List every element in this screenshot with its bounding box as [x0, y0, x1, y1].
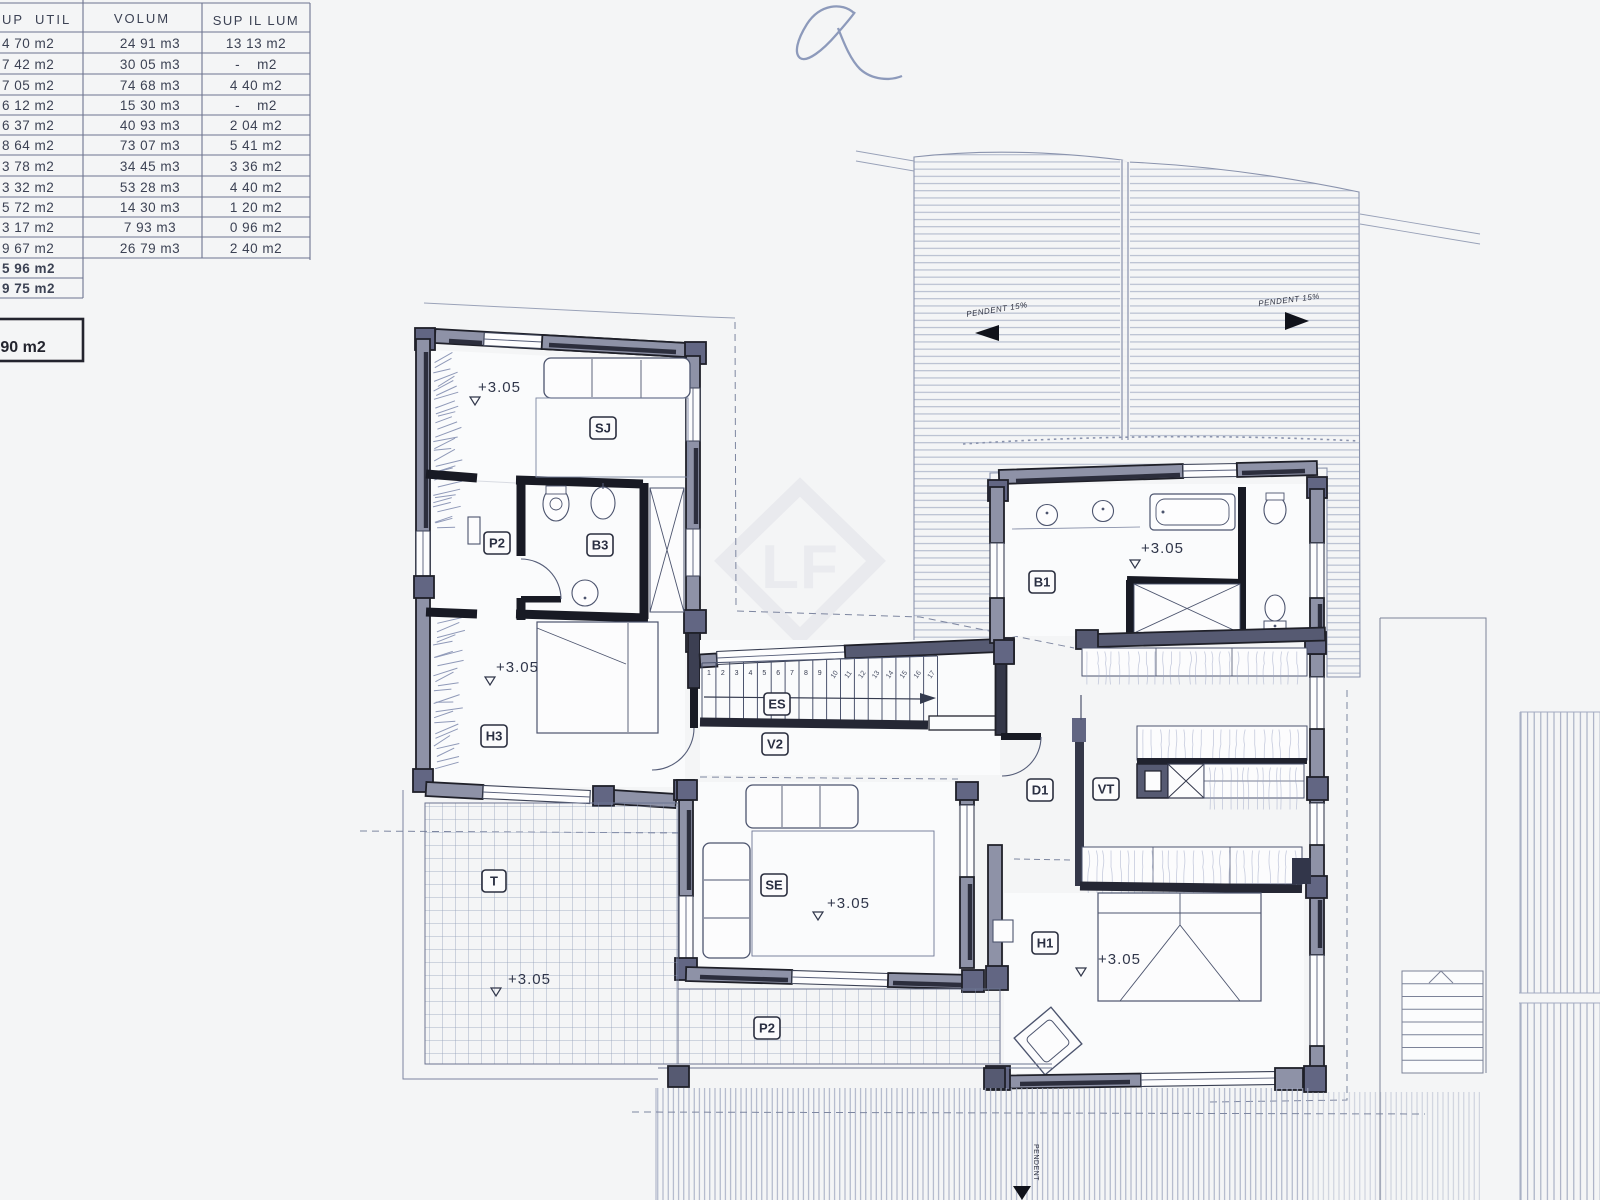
svg-text:73 07 m3: 73 07 m3: [120, 138, 180, 153]
svg-text:24 91 m3: 24 91 m3: [120, 36, 180, 51]
svg-text:3: 3: [735, 670, 739, 677]
svg-text:+3.05: +3.05: [827, 895, 870, 912]
svg-text:7 05 m2: 7 05 m2: [2, 78, 54, 93]
svg-text:4 40 m2: 4 40 m2: [230, 78, 282, 93]
svg-text:SJ: SJ: [595, 421, 611, 436]
svg-text:P2: P2: [759, 1021, 775, 1036]
svg-text:5: 5: [762, 670, 766, 677]
svg-text:26 79 m3: 26 79 m3: [120, 241, 180, 256]
svg-text:V2: V2: [767, 737, 783, 752]
svg-text:B1: B1: [1034, 575, 1051, 590]
svg-text:LF: LF: [761, 533, 839, 602]
svg-text:4: 4: [749, 670, 753, 677]
svg-text:1: 1: [707, 670, 711, 677]
svg-text:5 96 m2: 5 96 m2: [2, 261, 55, 276]
svg-text:- m2: - m2: [235, 57, 277, 72]
svg-text:74 68 m3: 74 68 m3: [120, 78, 180, 93]
svg-text:8 64 m2: 8 64 m2: [2, 138, 54, 153]
svg-text:15 30 m3: 15 30 m3: [120, 98, 180, 113]
svg-text:T: T: [490, 874, 498, 889]
svg-text:6 37 m2: 6 37 m2: [2, 118, 54, 133]
svg-text:9 75 m2: 9 75 m2: [2, 281, 55, 296]
svg-text:VOLUM: VOLUM: [114, 11, 170, 26]
svg-text:9: 9: [818, 670, 822, 677]
svg-text:UP UTIL: UP UTIL: [2, 12, 71, 27]
svg-text:SE: SE: [765, 878, 783, 893]
svg-text:13 13 m2: 13 13 m2: [226, 36, 286, 51]
svg-text:6: 6: [776, 670, 780, 677]
svg-text:+3.05: +3.05: [508, 971, 551, 988]
svg-text:9 67 m2: 9 67 m2: [2, 241, 54, 256]
svg-text:1 20 m2: 1 20 m2: [230, 200, 282, 215]
svg-text:7: 7: [790, 670, 794, 677]
svg-text:2: 2: [721, 670, 725, 677]
svg-text:4.90 m2: 4.90 m2: [0, 339, 46, 356]
svg-text:B3: B3: [592, 538, 609, 553]
svg-text:40 93 m3: 40 93 m3: [120, 118, 180, 133]
svg-text:ES: ES: [768, 697, 786, 712]
svg-text:5 72 m2: 5 72 m2: [2, 200, 54, 215]
svg-text:P2: P2: [489, 536, 505, 551]
svg-text:+3.05: +3.05: [1098, 951, 1141, 968]
svg-text:+3.05: +3.05: [478, 379, 521, 396]
svg-text:53 28 m3: 53 28 m3: [120, 180, 180, 195]
svg-text:34 45 m3: 34 45 m3: [120, 159, 180, 174]
svg-text:H3: H3: [486, 729, 503, 744]
svg-text:- m2: - m2: [235, 98, 277, 113]
svg-text:VT: VT: [1098, 782, 1115, 797]
svg-text:4 40 m2: 4 40 m2: [230, 180, 282, 195]
svg-text:30 05 m3: 30 05 m3: [120, 57, 180, 72]
svg-text:D1: D1: [1032, 783, 1049, 798]
svg-text:3 17 m2: 3 17 m2: [2, 220, 54, 235]
svg-text:8: 8: [804, 670, 808, 677]
svg-text:0 96 m2: 0 96 m2: [230, 220, 282, 235]
svg-text:5 41 m2: 5 41 m2: [230, 138, 282, 153]
svg-text:+3.05: +3.05: [1141, 540, 1184, 557]
svg-text:3 32 m2: 3 32 m2: [2, 180, 54, 195]
svg-text:4 70 m2: 4 70 m2: [2, 36, 54, 51]
svg-text:H1: H1: [1037, 936, 1054, 951]
svg-text:PENDENT: PENDENT: [1032, 1144, 1039, 1181]
svg-text:7 93 m3: 7 93 m3: [124, 220, 176, 235]
svg-text:3 78 m2: 3 78 m2: [2, 159, 54, 174]
svg-text:3 36 m2: 3 36 m2: [230, 159, 282, 174]
svg-text:SUP IL LUM: SUP IL LUM: [213, 13, 300, 28]
svg-text:14 30 m3: 14 30 m3: [120, 200, 180, 215]
svg-text:6 12 m2: 6 12 m2: [2, 98, 54, 113]
svg-text:+3.05: +3.05: [496, 659, 539, 676]
svg-text:7 42 m2: 7 42 m2: [2, 57, 54, 72]
svg-text:2 40 m2: 2 40 m2: [230, 241, 282, 256]
svg-text:2 04 m2: 2 04 m2: [230, 118, 282, 133]
